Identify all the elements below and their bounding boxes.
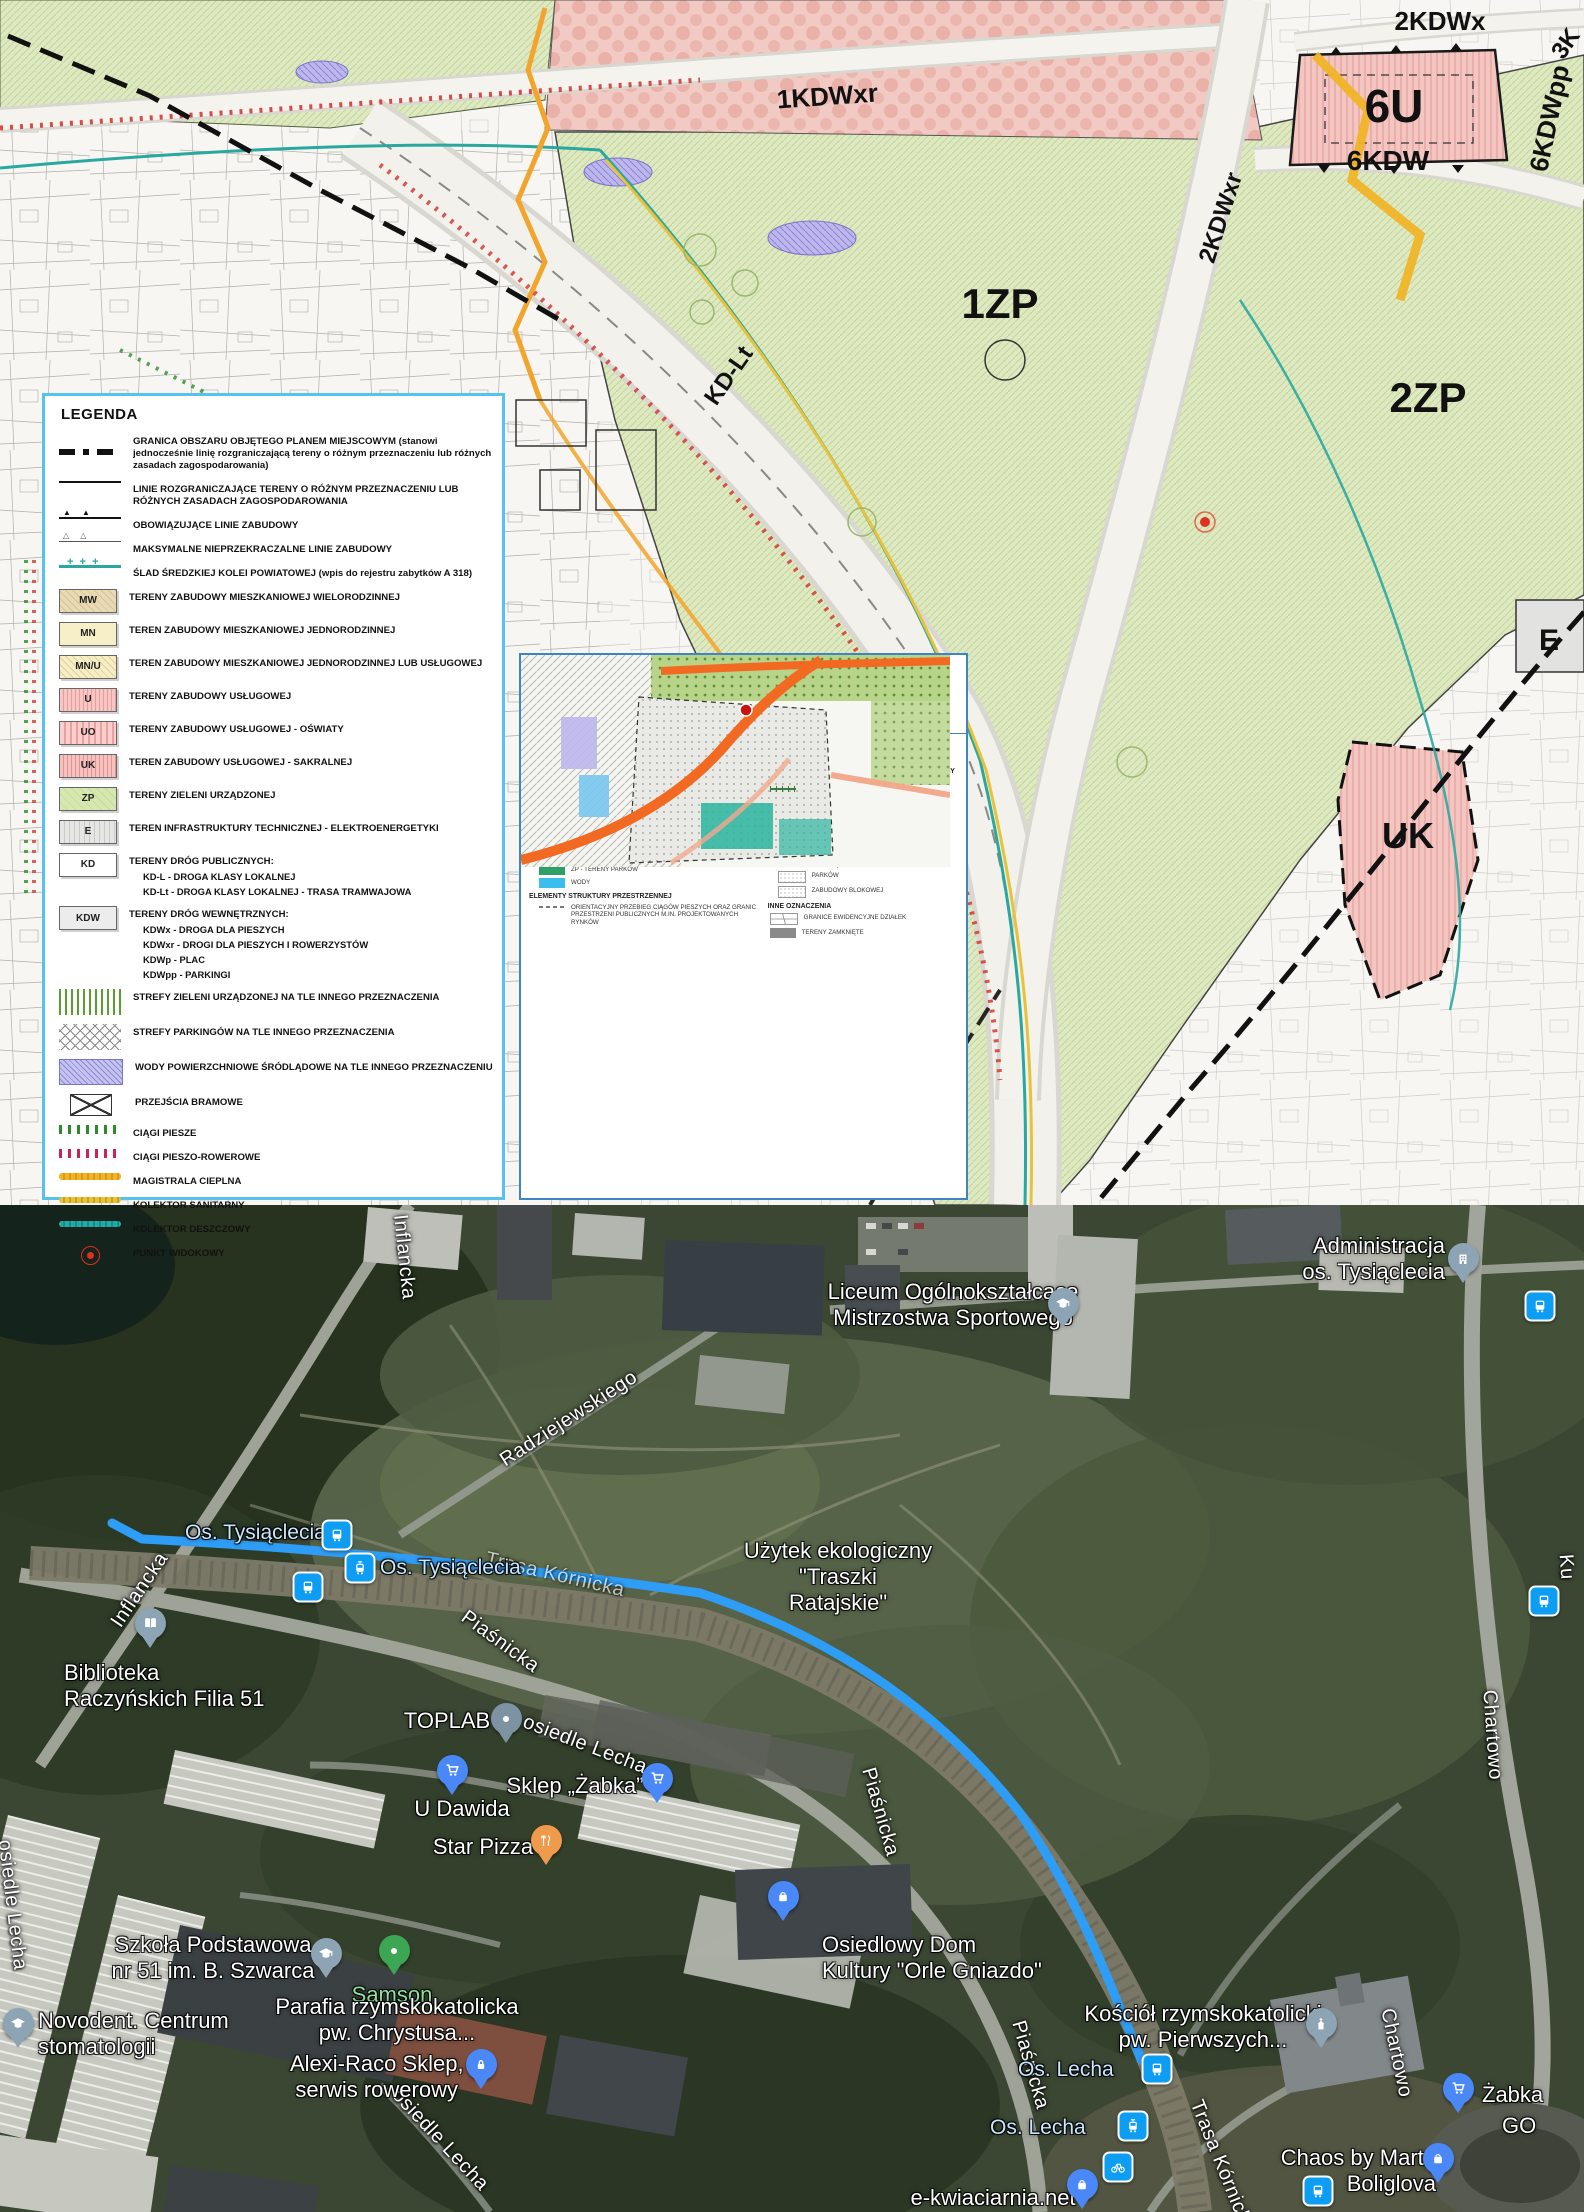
legend-swatch-uo: UO bbox=[59, 721, 117, 745]
legend-swatch-linie bbox=[59, 481, 121, 483]
poi-label-uzytek[interactable]: Użytek ekologiczny"TraszkiRatajskie" bbox=[744, 1538, 932, 1616]
water-area bbox=[296, 61, 348, 83]
street-label-ku: Ku bbox=[1554, 1553, 1579, 1580]
zone-label-uk: UK bbox=[1382, 815, 1434, 856]
legend-item-label: TEREN INFRASTRUKTURY TECHNICZNEJ - ELEKT… bbox=[129, 820, 439, 835]
legend-swatch-punkt-widokowy bbox=[59, 1245, 121, 1265]
poi-label-sklep-zabka[interactable]: Sklep „Żabka” bbox=[507, 1773, 644, 1799]
legend-swatch-u: U bbox=[59, 688, 117, 712]
store-pin-chaos[interactable] bbox=[1422, 2143, 1454, 2185]
church-pin-kosciol[interactable] bbox=[1305, 2008, 1337, 2050]
stop-label-os-lecha[interactable]: Os. Lecha bbox=[990, 2116, 1086, 2140]
store-pin-u-dawida[interactable] bbox=[436, 1755, 468, 1797]
legend-swatch-granica bbox=[59, 449, 121, 455]
zone-label-2zp: 2ZP bbox=[1389, 374, 1466, 421]
legend-item-label: TERENY DRÓG WEWNĘTRZNYCH: KDWx - DROGA D… bbox=[129, 906, 368, 980]
poi-label-parafia[interactable]: Parafia rzymskokatolickapw. Chrystusa... bbox=[275, 1994, 518, 2046]
inset-item-label: GRANICE EWIDENCYJNE DZIAŁEK bbox=[804, 913, 906, 922]
building-pin-administracja[interactable] bbox=[1447, 1243, 1479, 1285]
legend-swatch-przejscia bbox=[70, 1094, 112, 1116]
water-area bbox=[768, 221, 856, 255]
inset-swatch-dzialki bbox=[770, 913, 798, 925]
inset-swatch-tory bbox=[770, 788, 796, 790]
inset-section: ELEMENTY STRUKTURY PRZESTRZENNEJ bbox=[529, 893, 762, 900]
legend-swatch-ciagi-rowerowe bbox=[59, 1149, 121, 1158]
legend-swatch-magistrala bbox=[59, 1173, 121, 1180]
legend-item-label: CIĄGI PIESZO-ROWEROWE bbox=[133, 1149, 260, 1164]
poi-label-ekwiaciarnia[interactable]: e-kwiaciarnia.net bbox=[910, 2185, 1075, 2211]
poi-label-alexi-raco[interactable]: Alexi-Raco Sklep,serwis rowerowy bbox=[290, 2051, 458, 2103]
poi-label-zabka[interactable]: Żabka bbox=[1482, 2082, 1543, 2108]
legend-swatch-zp: ZP bbox=[59, 787, 117, 811]
legend-swatch-mn: MN bbox=[59, 622, 117, 646]
legend-swatch-e: E bbox=[59, 820, 117, 844]
legend-item-label: TERENY ZABUDOWY USŁUGOWEJ - OŚWIATY bbox=[129, 721, 344, 736]
poi-label-administracja[interactable]: Administracjaos. Tysiąclecia bbox=[1245, 1233, 1445, 1285]
marker-pin-toplab[interactable] bbox=[490, 1703, 522, 1745]
store-pin-zabka-go[interactable] bbox=[1442, 2073, 1474, 2115]
poi-label-liceum[interactable]: Liceum OgólnokształcąceMistrzostwa Sport… bbox=[828, 1279, 1079, 1331]
legend-item-label: TERENY ZIELENI URZĄDZONEJ bbox=[129, 787, 275, 802]
legend-item-label: TEREN ZABUDOWY MIESZKANIOWEJ JEDNORODZIN… bbox=[129, 655, 482, 670]
bus-stop-icon[interactable] bbox=[1525, 1291, 1556, 1322]
school-pin-szkola[interactable] bbox=[310, 1938, 342, 1980]
legend-item-label: KOLEKTOR SANITARNY bbox=[133, 1197, 245, 1212]
zoning-plan-map[interactable]: 1KDWxr 2KDWx 3K 6U 6KDW 6KDWpp 2KDWxr KD… bbox=[0, 0, 1584, 1205]
library-pin-biblioteka[interactable] bbox=[134, 1608, 166, 1650]
study-inset: WYRYS ZE STUDIUM UWARUNKOWAŃ I KIERUNKÓW… bbox=[519, 653, 968, 1200]
legend-swatch-uk: UK bbox=[59, 754, 117, 778]
legend-swatch-nieprzekraczalne bbox=[59, 541, 121, 542]
school-pin-liceum[interactable] bbox=[1047, 1288, 1079, 1330]
poi-label-chaos[interactable]: Chaos by MartaBoliglova bbox=[1268, 2145, 1436, 2197]
legend-item-label: PUNKT WIDOKOWY bbox=[133, 1245, 225, 1260]
clinic-pin-novodent[interactable] bbox=[2, 2008, 34, 2050]
zone-label-6kdw: 6KDW bbox=[1347, 145, 1430, 176]
legend-swatch-sanitarny bbox=[59, 1197, 121, 1203]
inset-section: INNE OZNACZENIA bbox=[768, 903, 958, 910]
legend-item-label: PRZEJŚCIA BRAMOWE bbox=[135, 1094, 243, 1109]
legend-item-label: WODY POWIERZCHNIOWE ŚRÓDLĄDOWE NA TLE IN… bbox=[135, 1059, 493, 1074]
inset-swatch-ciagi bbox=[539, 906, 565, 908]
plan-legend: LEGENDA GRANICA OBSZARU OBJĘTEGO PLANEM … bbox=[42, 393, 505, 1200]
bike-shop-pin-alexi[interactable] bbox=[465, 2049, 497, 2091]
zone-label-1zp: 1ZP bbox=[961, 280, 1038, 327]
legend-item-label: GRANICA OBSZARU OBJĘTEGO PLANEM MIEJSCOW… bbox=[133, 433, 494, 472]
stop-label-os-tysiaclecia[interactable]: Os. Tysiąclecia bbox=[185, 1521, 326, 1545]
inset-item-label: TERENY ZAMKNIĘTE bbox=[802, 928, 864, 937]
legend-swatch-strefy-parkingow bbox=[59, 1024, 121, 1050]
bicycle-icon[interactable] bbox=[1103, 2152, 1134, 2183]
legend-swatch-mnu: MN/U bbox=[59, 655, 117, 679]
restaurant-pin-star-pizza[interactable] bbox=[530, 1825, 562, 1867]
study-inset-map-canvas bbox=[521, 655, 950, 867]
legend-item-label: TEREN ZABUDOWY USŁUGOWEJ - SAKRALNEJ bbox=[129, 754, 352, 769]
legend-item-label: TERENY DRÓG PUBLICZNYCH: KD-L - DROGA KL… bbox=[129, 853, 411, 897]
legend-item-label: STREFY ZIELENI URZĄDZONEJ NA TLE INNEGO … bbox=[133, 989, 439, 1004]
poi-label-zabka-go[interactable]: GO bbox=[1502, 2113, 1536, 2139]
bus-stop-icon[interactable] bbox=[293, 1572, 324, 1603]
legend-swatch-obowiazujace bbox=[59, 517, 121, 519]
bus-stop-icon[interactable] bbox=[1303, 2176, 1334, 2207]
poi-label-star-pizza[interactable]: Star Pizza bbox=[433, 1834, 533, 1860]
tram-stop-icon[interactable] bbox=[1118, 2111, 1149, 2142]
screenshot: 1KDWxr 2KDWx 3K 6U 6KDW 6KDWpp 2KDWxr KD… bbox=[0, 0, 1584, 2212]
inset-swatch-zamkniete bbox=[770, 928, 796, 938]
legend-swatch-mw: MW bbox=[59, 589, 117, 613]
bus-stop-icon[interactable] bbox=[1529, 1586, 1560, 1617]
bus-stop-icon[interactable] bbox=[322, 1520, 353, 1551]
zone-label-e: E bbox=[1539, 624, 1559, 657]
zone-label-2kdwx: 2KDWx bbox=[1394, 6, 1486, 36]
stop-label-os-tysiaclecia[interactable]: Os. Tysiąclecia bbox=[380, 1556, 521, 1580]
bus-stop-icon[interactable] bbox=[1142, 2054, 1173, 2085]
poi-label-toplab[interactable]: TOPLAB bbox=[404, 1708, 490, 1734]
stop-label-os-lecha[interactable]: Os. Lecha bbox=[1018, 2058, 1114, 2082]
legend-item-label: TERENY ZABUDOWY MIESZKANIOWEJ WIELORODZI… bbox=[129, 589, 400, 604]
tram-stop-icon[interactable] bbox=[345, 1553, 376, 1584]
legend-swatch-wody bbox=[59, 1059, 123, 1085]
legend-swatch-kdw: KDW bbox=[59, 906, 117, 930]
poi-label-kosciol[interactable]: Kościół rzymskokatolickipw. Pierwszych..… bbox=[1084, 2001, 1321, 2053]
legend-item-label: TERENY ZABUDOWY USŁUGOWEJ bbox=[129, 688, 291, 703]
poi-label-biblioteka[interactable]: BibliotekaRaczyńskich Filia 51 bbox=[64, 1660, 265, 1712]
zone-label-6u: 6U bbox=[1365, 80, 1424, 132]
store-pin-ekwiaciarnia[interactable] bbox=[1066, 2169, 1098, 2211]
store-pin-sklep-zabka[interactable] bbox=[641, 1763, 673, 1805]
legend-item-label: STREFY PARKINGÓW NA TLE INNEGO PRZEZNACZ… bbox=[133, 1024, 395, 1039]
legend-item-label: TEREN ZABUDOWY MIESZKANIOWEJ JEDNORODZIN… bbox=[129, 622, 395, 637]
legend-item-label: LINIE ROZGRANICZAJĄCE TERENY O RÓŻNYM PR… bbox=[133, 481, 494, 508]
inset-swatch-blokowej bbox=[778, 886, 806, 898]
legend-swatch-deszczowy bbox=[59, 1221, 121, 1227]
inset-swatch-wody bbox=[539, 878, 565, 888]
legend-item-label: MAGISTRALA CIEPLNA bbox=[133, 1173, 241, 1188]
legend-item-label: MAKSYMALNE NIEPRZEKRACZALNE LINIE ZABUDO… bbox=[133, 541, 392, 556]
satellite-map[interactable]: Inflancka Radziejewskiego Trasa Kórnicka… bbox=[0, 1205, 1584, 2212]
legend-item-label: ŚLAD ŚREDZKIEJ KOLEI POWIATOWEJ (wpis do… bbox=[133, 565, 472, 580]
inset-item-label: ZABUDOWY BLOKOWEJ bbox=[812, 886, 884, 895]
marker-pin-samson[interactable] bbox=[378, 1935, 410, 1977]
legend-item-label: CIĄGI PIESZE bbox=[133, 1125, 196, 1140]
legend-swatch-kolej bbox=[59, 565, 121, 568]
poi-label-novodent[interactable]: Novodent. Centrumstomatologii bbox=[38, 2008, 229, 2060]
inset-item-label: WODY bbox=[571, 878, 590, 887]
legend-item-label: OBOWIĄZUJĄCE LINIE ZABUDOWY bbox=[133, 517, 298, 532]
inset-swatch-parkow bbox=[778, 871, 806, 883]
poi-label-u-dawida[interactable]: U Dawida bbox=[414, 1796, 509, 1822]
poi-label-odk[interactable]: Osiedlowy DomKultury "Orle Gniazdo" bbox=[822, 1932, 1042, 1984]
legend-swatch-strefy-zieleni bbox=[59, 989, 121, 1015]
inset-item-label: ORIENTACYJNY PRZEBIEG CIĄGÓW PIESZYCH OR… bbox=[571, 903, 762, 927]
legend-title: LEGENDA bbox=[61, 406, 494, 423]
legend-item-label: KOLEKTOR DESZCZOWY bbox=[133, 1221, 251, 1236]
inset-item-label: PARKÓW bbox=[812, 871, 839, 880]
poi-label-szkola[interactable]: Szkoła Podstawowanr 51 im. B. Szwarca bbox=[112, 1932, 315, 1984]
culture-pin-odk[interactable] bbox=[767, 1881, 799, 1923]
legend-swatch-ciagi-piesze bbox=[59, 1125, 121, 1134]
legend-swatch-kd: KD bbox=[59, 853, 117, 877]
